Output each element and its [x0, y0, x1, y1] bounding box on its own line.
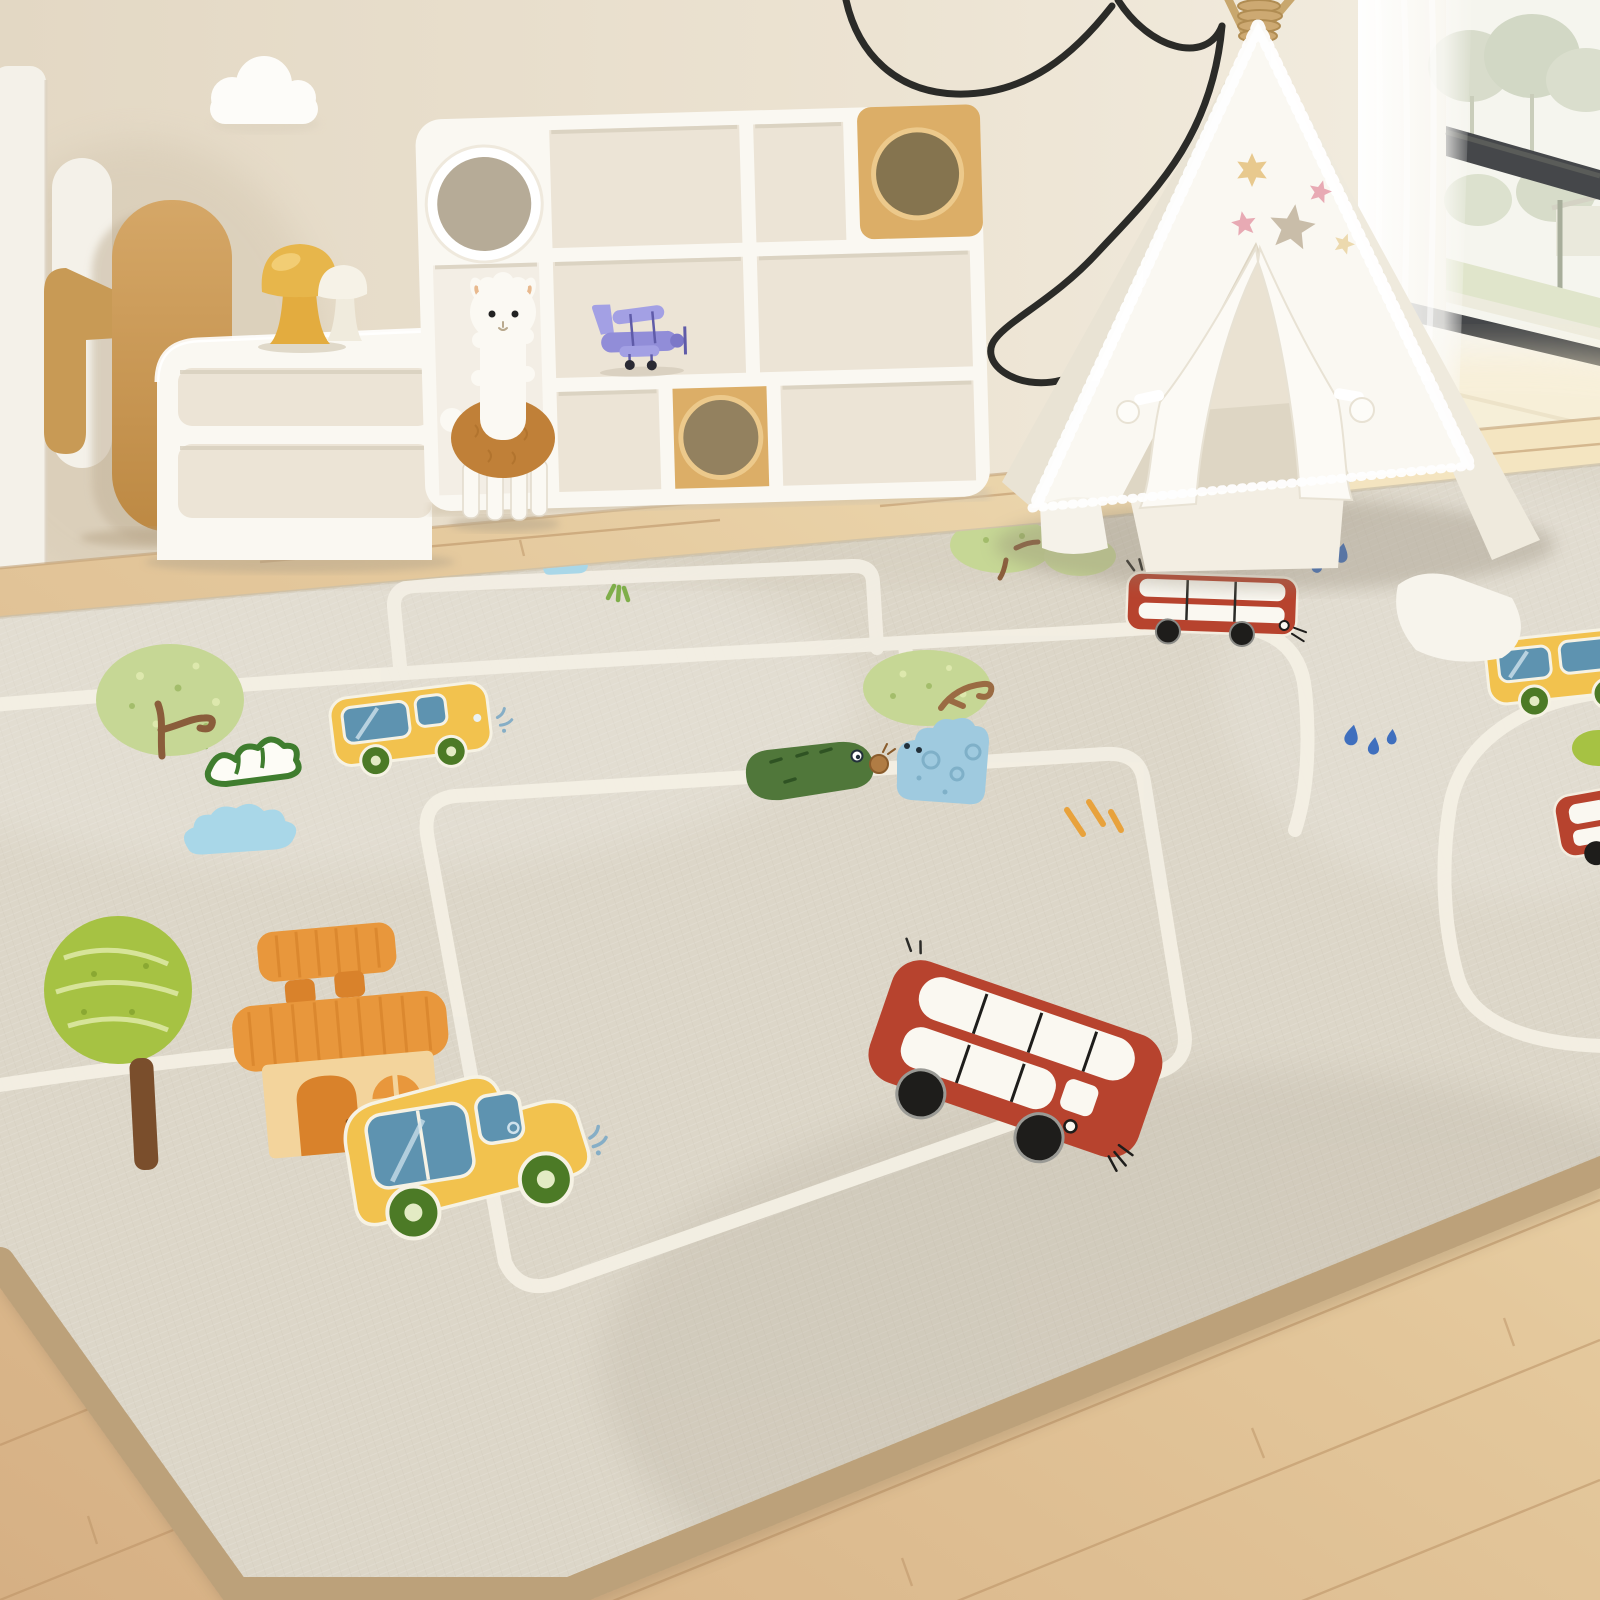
playroom-illustration — [0, 0, 1600, 1600]
cubby-circle-cutout-tan-bottom — [672, 386, 769, 489]
playroom-scene — [0, 0, 1600, 1600]
low-shelf — [145, 330, 455, 573]
cubby-circle-cutout-tan-top — [857, 104, 984, 239]
rug-tree-center — [863, 650, 991, 726]
snail — [870, 755, 888, 773]
low-shelf-slot — [178, 444, 432, 518]
white-side-panel — [0, 66, 46, 626]
low-shelf-slot — [178, 368, 432, 426]
distant-house — [1556, 206, 1600, 256]
cubby-circle-cutout-white — [425, 144, 544, 263]
